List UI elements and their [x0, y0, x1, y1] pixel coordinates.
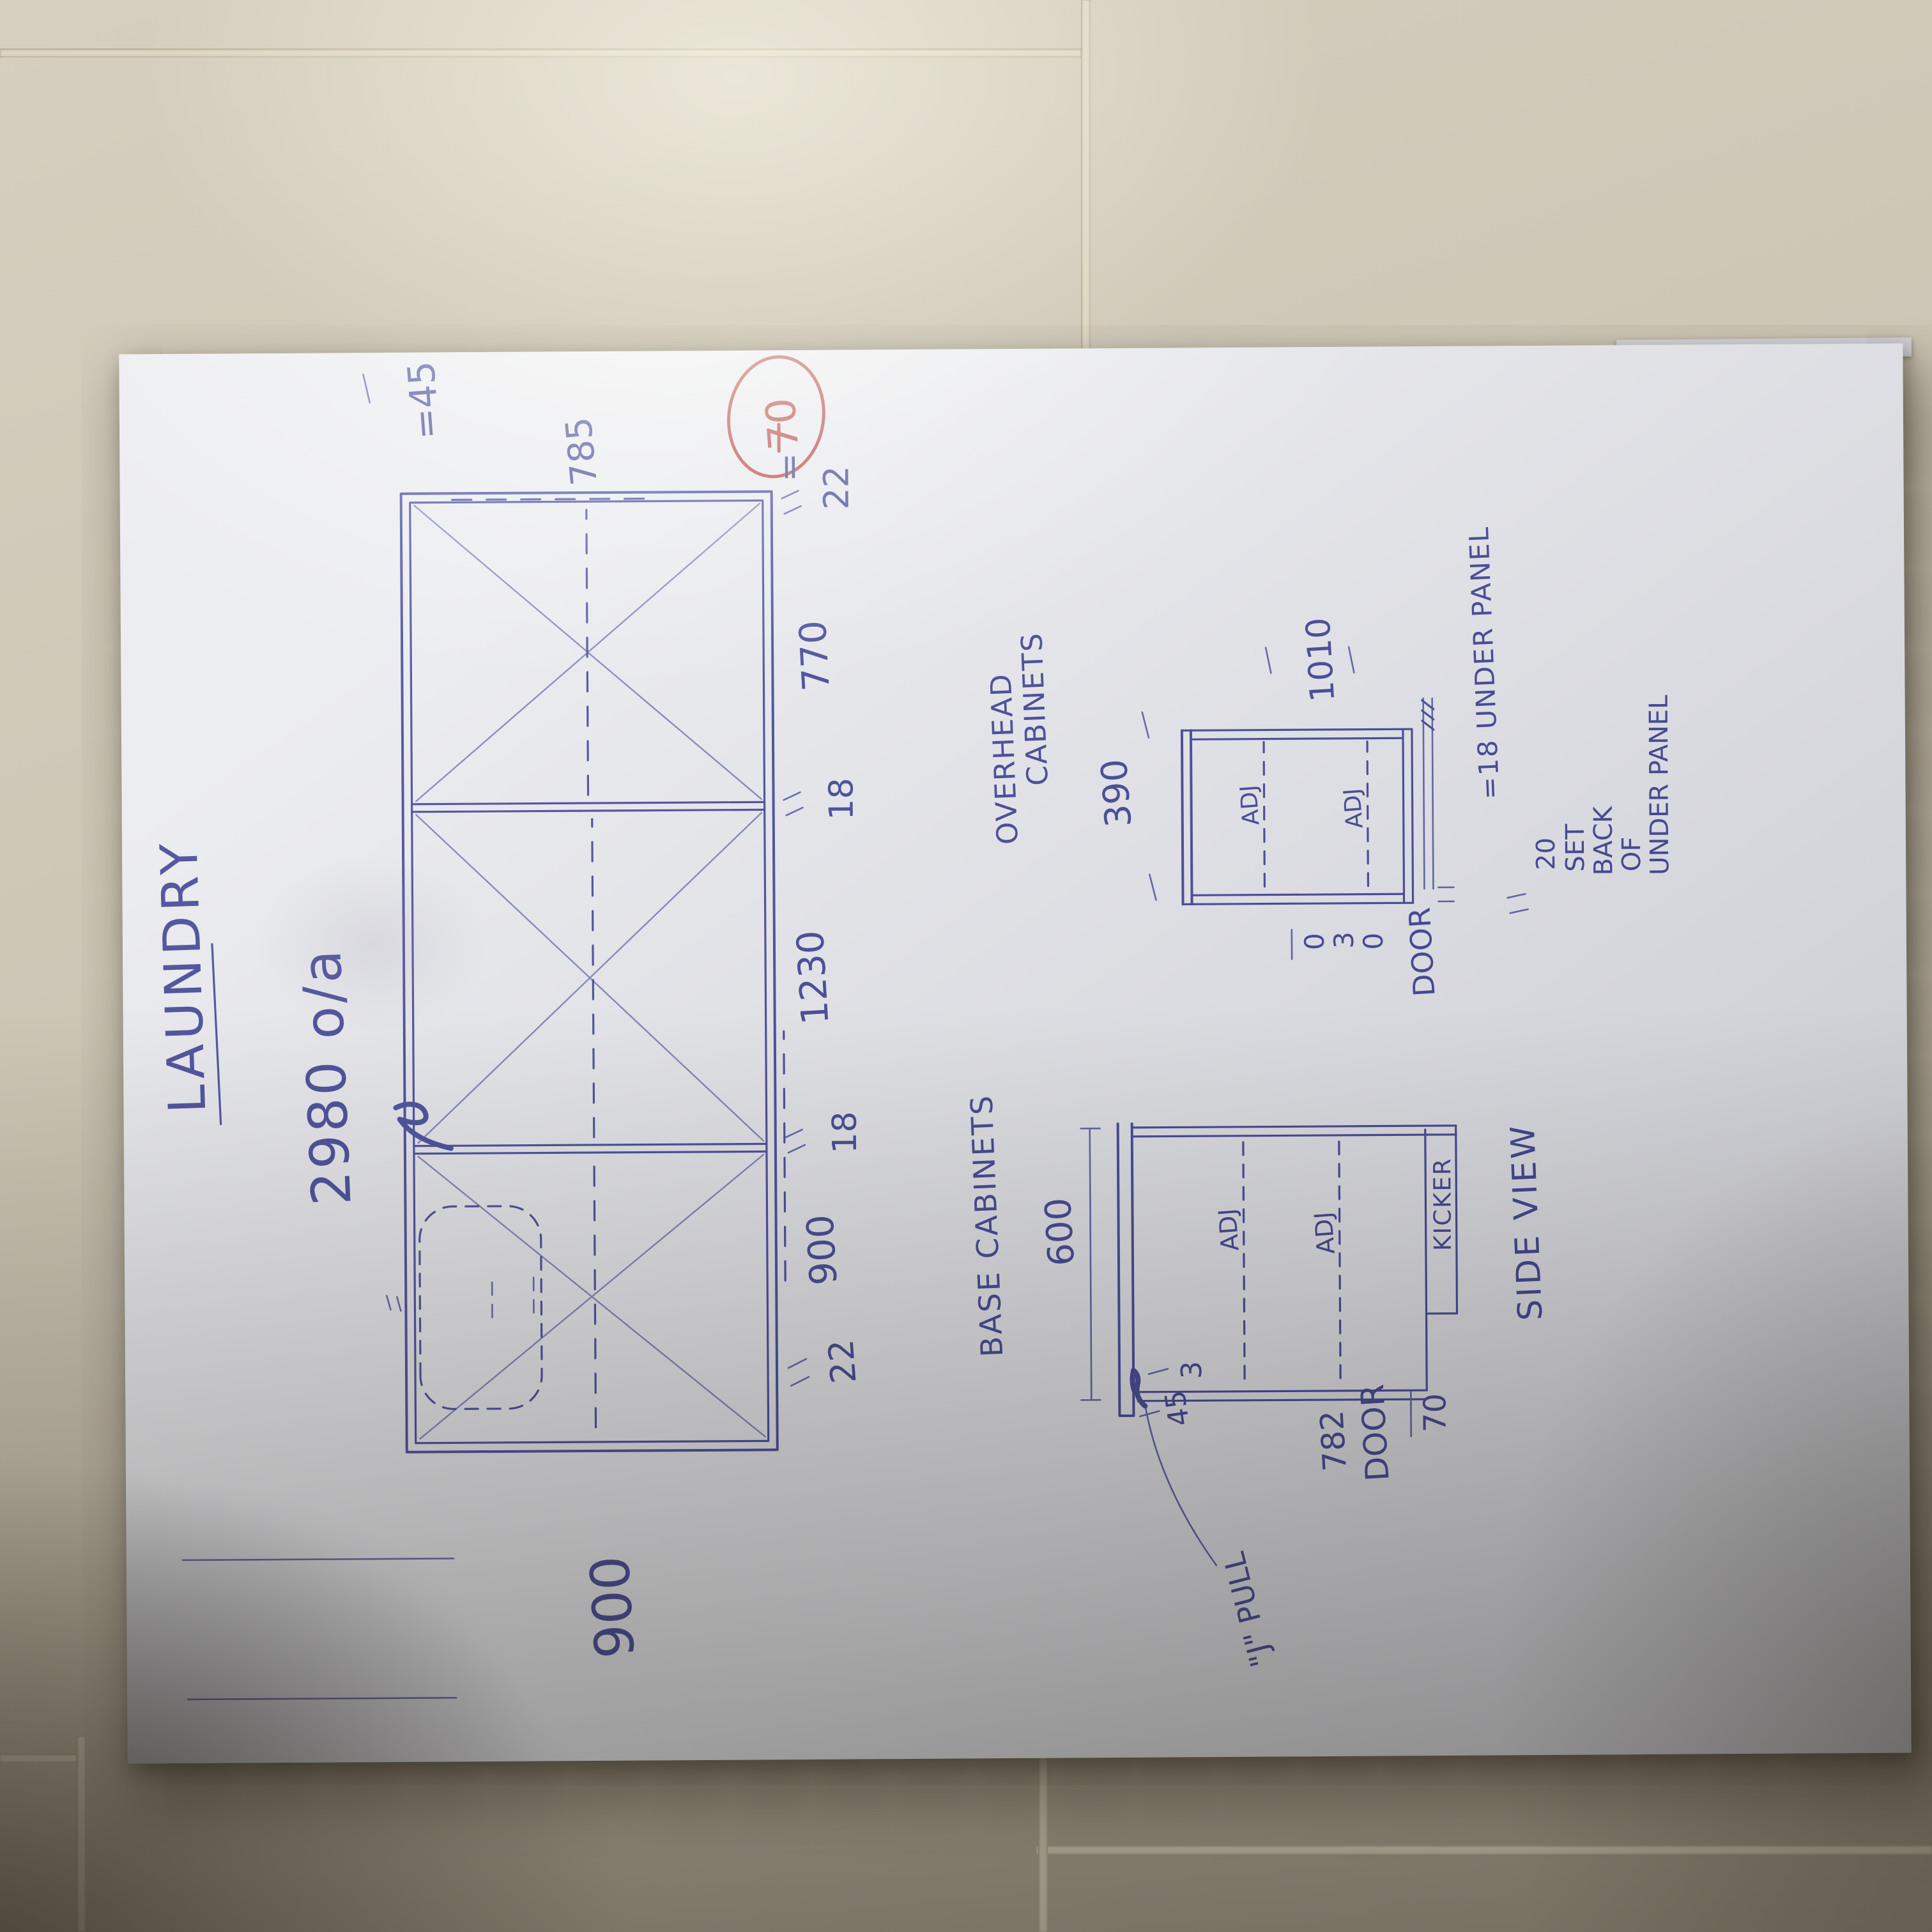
- base-shelf-dashed-1: [1243, 1142, 1245, 1379]
- kicker-height-dim-red: 70: [757, 396, 808, 452]
- section2-dashed-centerline: [592, 819, 594, 1137]
- elevation-right-dims: =45 785 = 70: [363, 350, 832, 488]
- base-depth-dim: 600: [1038, 1197, 1083, 1268]
- small-tick-above-top-edge: [387, 1296, 401, 1311]
- overall-width-dim: 2980 o/a: [290, 946, 363, 1206]
- dim-18-right: 18: [822, 778, 861, 820]
- overhead-gap-digit-mid: 3: [1328, 931, 1360, 949]
- elevation-divider-2: [412, 802, 765, 811]
- base-gap-dim: 3: [1176, 1361, 1208, 1379]
- base-heading: BASE CABINETS: [964, 1093, 1010, 1358]
- overhead-bottom-edge: [1403, 729, 1413, 903]
- section1-x-mark: [418, 1154, 766, 1439]
- overhead-depth-dim: 390: [1094, 758, 1140, 829]
- overhead-setback-note: 20 SET BACK OF UNDER PANEL: [1531, 694, 1675, 876]
- rotated-drawing-wrapper: LAUNDRY 2980 o/a: [119, 343, 1911, 1763]
- overhead-front-edge: [1183, 894, 1413, 904]
- dim-770: 770: [791, 619, 838, 693]
- dim-22-left: 22: [821, 1338, 864, 1384]
- photo-of-sketch: LAUNDRY 2980 o/a: [0, 0, 1932, 1932]
- setback-note-line2: SET: [1561, 824, 1590, 872]
- base-shelf-dashed-2: [1339, 1142, 1340, 1378]
- base-door-label: DOOR: [1354, 1383, 1397, 1482]
- tile-grout-vertical-top: [1081, 0, 1091, 358]
- below-bottom-dashed-line: [784, 1031, 785, 1280]
- base-shelf-label-2: ADJ: [1309, 1211, 1340, 1255]
- dim-tick: [1142, 712, 1156, 900]
- dim-tick: [788, 1359, 809, 1386]
- tile-grout-horizontal-bottom: [1036, 1845, 1932, 1855]
- dim-tick: [786, 1130, 805, 1153]
- base-pull-label: "J" PULL: [1216, 1549, 1279, 1671]
- tile-grout-vertical-bottom: [1038, 1747, 1048, 1932]
- elevation-outer-rect: [401, 491, 778, 1452]
- elevation-height-dim: 900: [578, 1554, 647, 1660]
- door-height-dim: 785: [558, 415, 606, 487]
- overhead-gap-digit-top: 0: [1299, 933, 1330, 950]
- overhead-heading-line2: CABINETS: [1015, 631, 1055, 786]
- stray-line-left-1: [188, 1698, 456, 1699]
- page-title: LAUNDRY: [149, 838, 217, 1114]
- setback-note-line1: 20: [1531, 838, 1561, 870]
- overhead-shelf-label-2: ADJ: [1339, 787, 1368, 829]
- base-back-edge: [1132, 1126, 1456, 1137]
- bench-thickness-dim: =45: [399, 360, 448, 441]
- dim-tick: [1507, 894, 1528, 913]
- base-bottom-edge: [1425, 1130, 1427, 1390]
- dim-tick: [782, 491, 801, 514]
- overhead-setback-ticks: [1438, 887, 1453, 901]
- dim-1230: 1230: [788, 929, 838, 1025]
- dim-22-right: 22: [816, 466, 856, 510]
- base-kicker-dim: 70: [1417, 1393, 1453, 1432]
- overhead-cabinet-drawing: OVERHEAD CABINETS 390 ADJ ADJ: [983, 525, 1675, 1000]
- section2-x-mark: [416, 812, 764, 1143]
- overhead-shelf-dashed-2: [1367, 742, 1368, 886]
- base-door-dim: 782: [1314, 1409, 1354, 1473]
- tile-grout-vertical-bottomleft: [77, 1736, 86, 1932]
- drawing-sheet: LAUNDRY 2980 o/a: [119, 343, 1911, 1763]
- side-view-label: SIDE VIEW: [1504, 1123, 1551, 1321]
- laundry-tub-hidden-outline: [419, 1206, 542, 1409]
- tile-grout-horizontal-bottomleft: [0, 1754, 77, 1763]
- elevation-divider-1: [414, 1144, 767, 1153]
- setback-note-line4: OF: [1617, 836, 1646, 871]
- elevation-bottom-dims: 22 900 18 1230 18 770 22: [781, 466, 866, 1386]
- base-cabinet-drawing: BASE CABINETS 600 ADJ ADJ KICKER: [964, 1091, 1459, 1673]
- setback-note-line5: UNDER PANEL: [1644, 694, 1675, 875]
- overhead-shelf-label-1: ADJ: [1236, 784, 1265, 826]
- section3-dashed-centerline: [586, 510, 588, 795]
- stray-line-left-2: [183, 1558, 454, 1560]
- tub-drain-marks: [492, 1271, 533, 1317]
- overhead-door-label: DOOR: [1402, 907, 1442, 998]
- dim-tick: [363, 374, 369, 402]
- base-bench-dim: 45: [1159, 1388, 1197, 1429]
- overhead-under-panel: [1423, 698, 1434, 889]
- overhead-under-panel-note: =18 UNDER PANEL: [1463, 525, 1506, 800]
- dim-18-left: 18: [826, 1111, 864, 1154]
- elevation-drawing: 900 22 900 18 1230 18 770 22: [175, 350, 868, 1699]
- paper-sheet: LAUNDRY 2980 o/a: [119, 343, 1911, 1763]
- setback-note-line3: BACK: [1589, 805, 1619, 875]
- elevation-inner-rect: [410, 500, 769, 1443]
- right-edge-dashed-line: [452, 498, 650, 500]
- overhead-back-edge: [1182, 729, 1412, 739]
- overhead-height-dim: 1010: [1299, 617, 1343, 703]
- base-shelf-label-1: ADJ: [1213, 1207, 1245, 1252]
- base-pull-arrow: [1145, 1404, 1216, 1566]
- dim-900: 900: [798, 1213, 845, 1287]
- dim-tick: [783, 792, 802, 815]
- tile-grout-horizontal-top: [0, 49, 1081, 57]
- overhead-top-edge: [1182, 730, 1192, 904]
- overhead-gap-digit-bot: 0: [1358, 933, 1389, 950]
- kicker-eq-mark: =: [769, 453, 809, 482]
- base-kicker-label: KICKER: [1429, 1157, 1457, 1251]
